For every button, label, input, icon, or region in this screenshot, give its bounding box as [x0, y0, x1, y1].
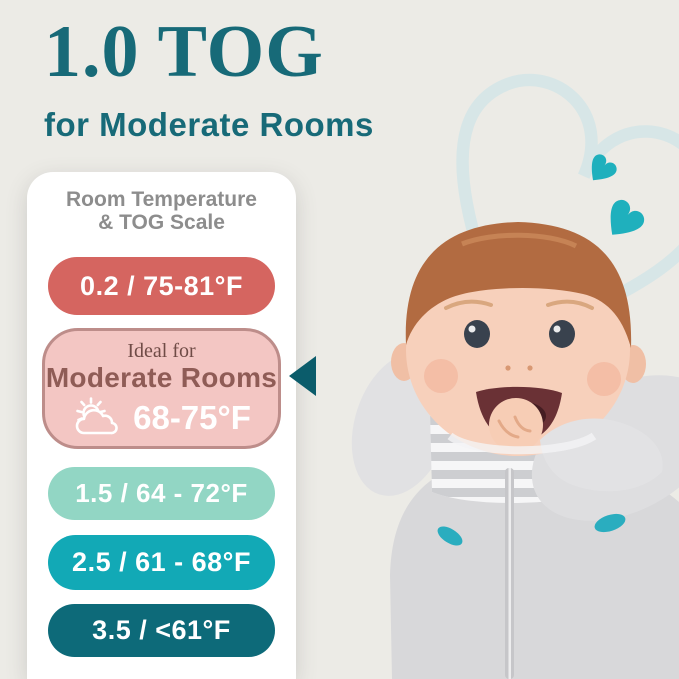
infographic-canvas: 1.0 TOG for Moderate Rooms Room Temperat… — [0, 0, 679, 679]
tog-pill-0-2: 0.2 / 75-81°F — [48, 257, 275, 315]
page-title: 1.0 TOG — [44, 14, 374, 92]
tog-pill-2-5: 2.5 / 61 - 68°F — [48, 535, 275, 590]
small-heart-icon — [583, 152, 620, 189]
tog-pill-1-5: 1.5 / 64 - 72°F — [48, 467, 275, 520]
card-heading-line2: & TOG Scale — [35, 211, 288, 234]
heart-outline-icon — [395, 60, 679, 391]
hero-header: 1.0 TOG for Moderate Rooms — [44, 14, 374, 144]
tog-pill-1-0-ideal: Ideal for Moderate Rooms 68-75°F — [42, 328, 281, 449]
ideal-room-label: Moderate Rooms — [46, 362, 277, 394]
tog-pill-3-5: 3.5 / <61°F — [48, 604, 275, 657]
card-heading: Room Temperature & TOG Scale — [35, 188, 288, 234]
sun-behind-cloud-icon — [72, 397, 124, 437]
ideal-for-label: Ideal for — [127, 340, 195, 362]
ideal-temp-value: 68-75°F — [133, 401, 251, 434]
ideal-pointer-arrow-icon — [289, 356, 316, 396]
page-subtitle: for Moderate Rooms — [44, 106, 374, 144]
card-heading-line1: Room Temperature — [35, 188, 288, 211]
large-heart-icon — [598, 196, 648, 246]
tog-scale-card: Room Temperature & TOG Scale 0.2 / 75-81… — [27, 172, 296, 679]
ideal-temp-row: 68-75°F — [72, 397, 251, 437]
